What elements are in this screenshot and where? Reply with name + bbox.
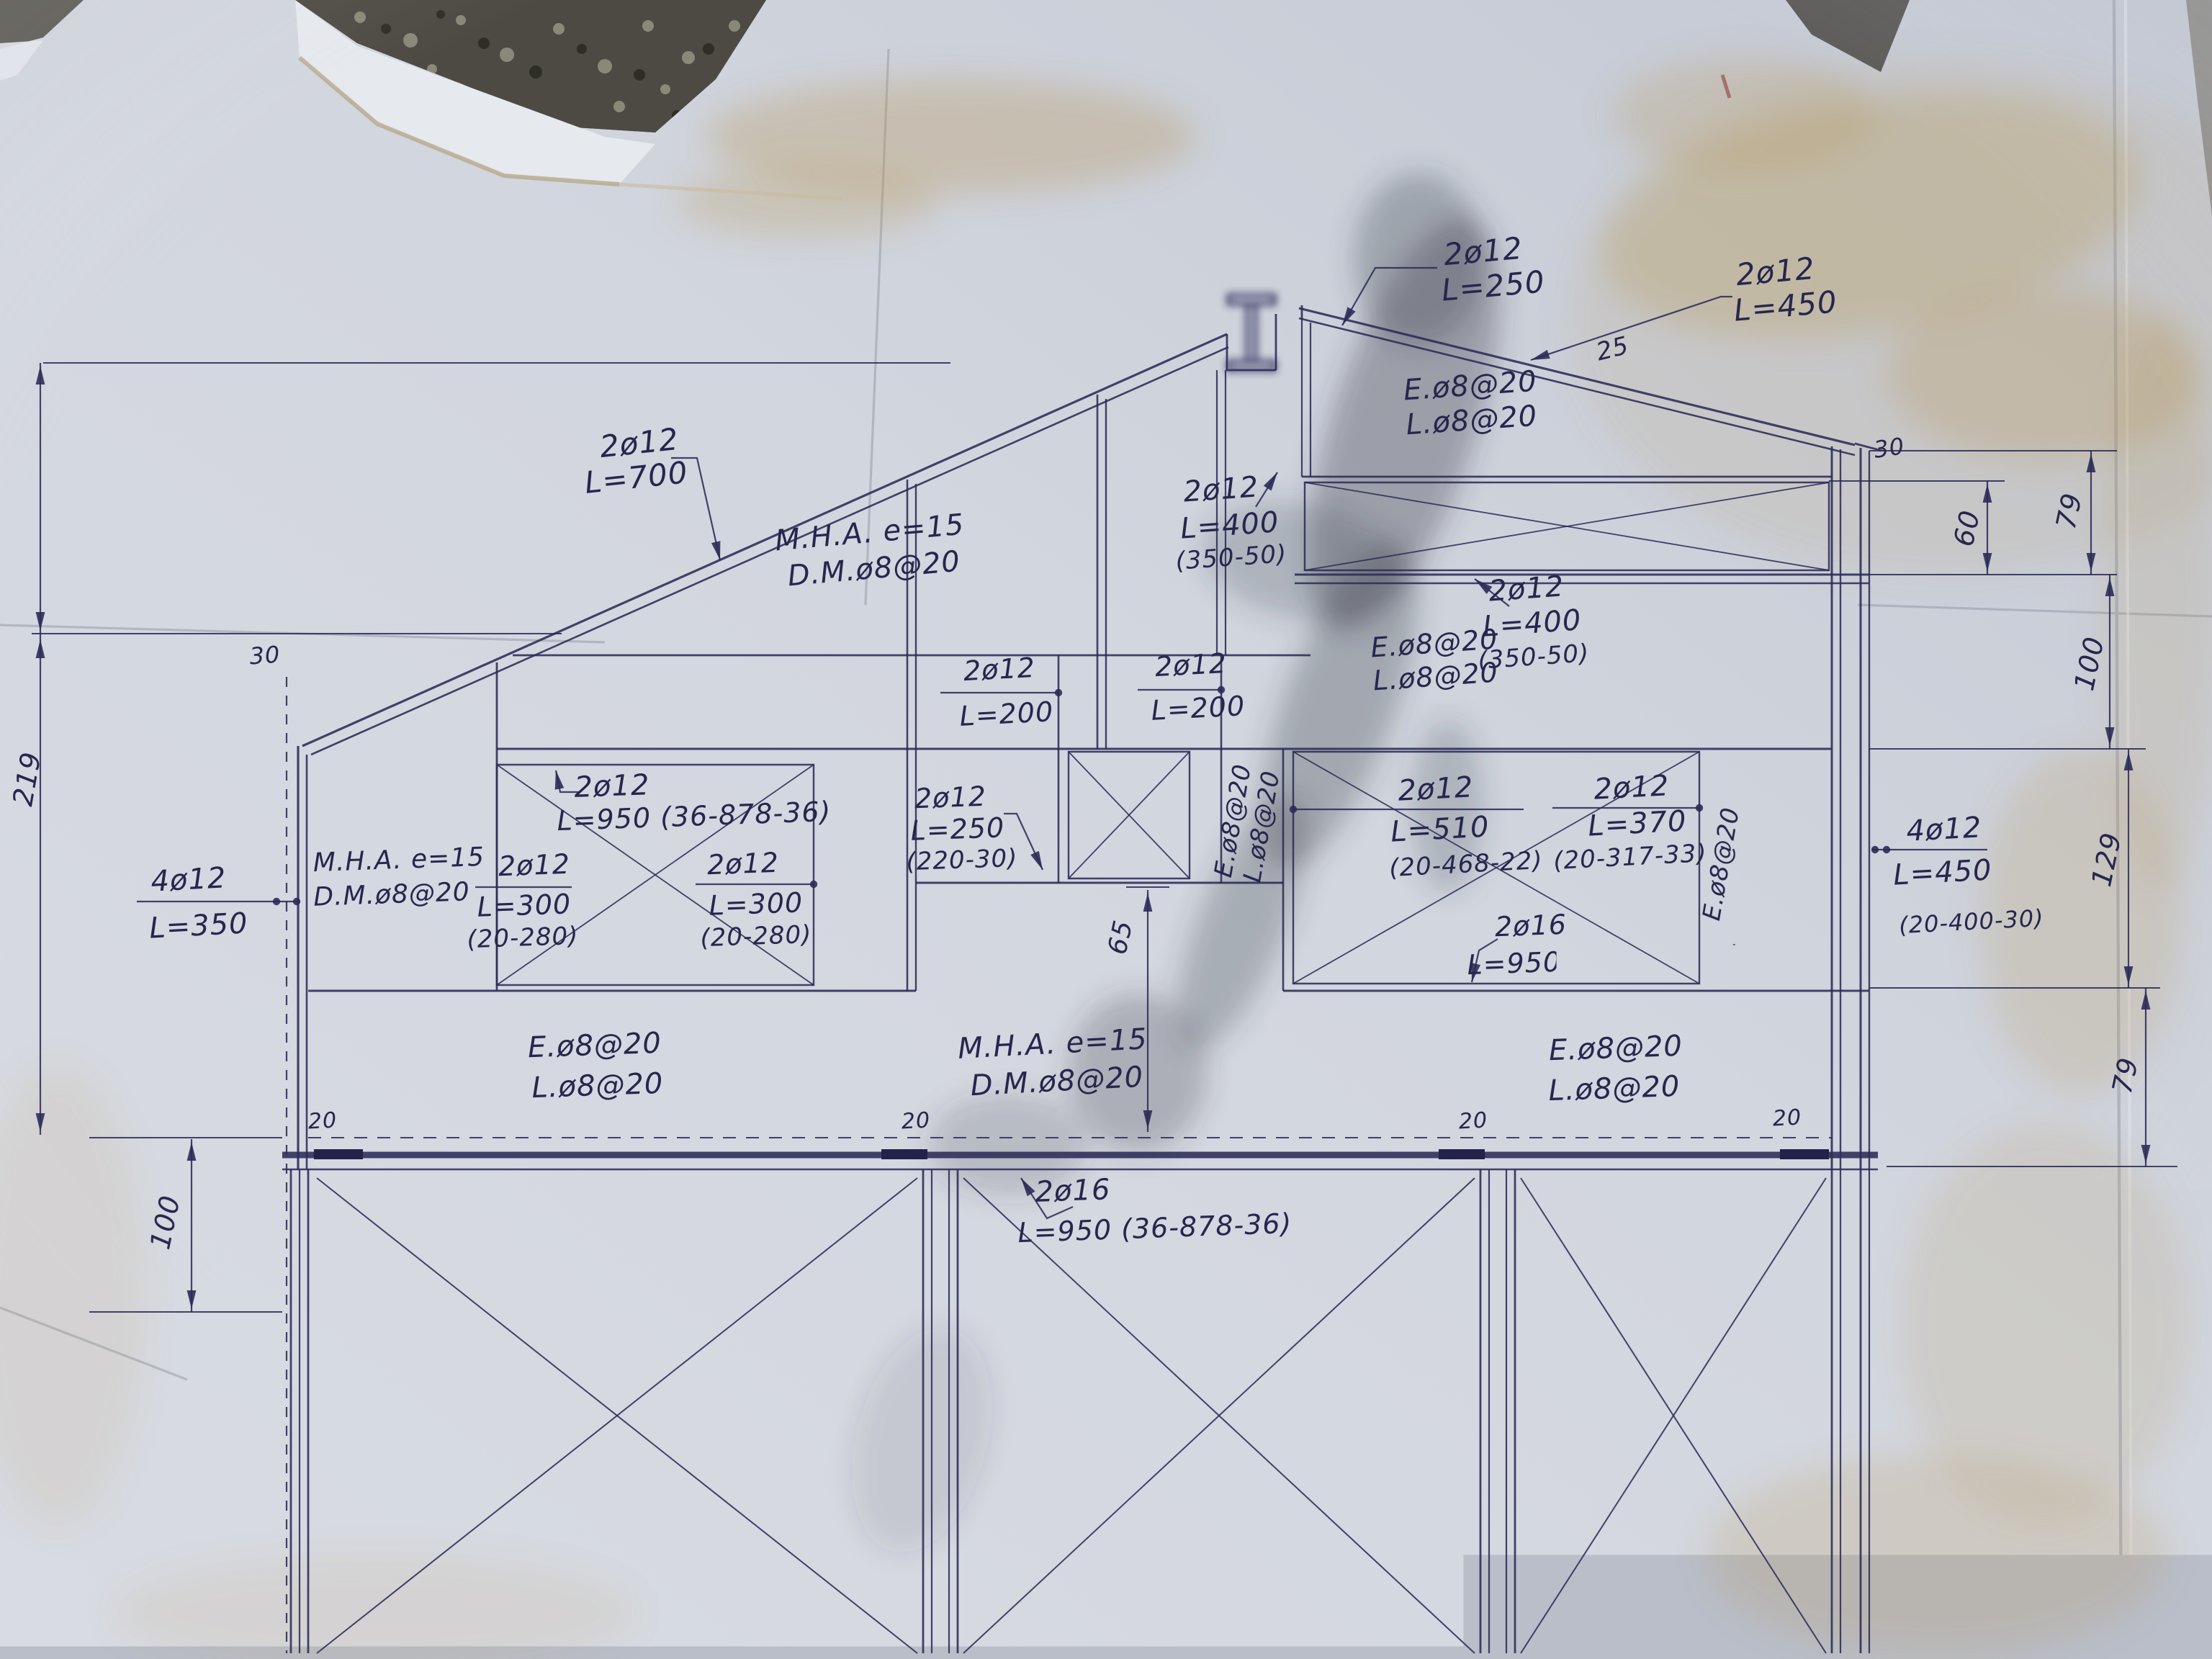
blueprint-cross-section: 2ø12L=2502ø12L=45025E.ø8@20L.ø8@202ø12L=… bbox=[0, 0, 2212, 1659]
photo-vignette bbox=[0, 0, 2212, 1659]
photo-of-structural-drawing: 2ø12L=2502ø12L=45025E.ø8@20L.ø8@202ø12L=… bbox=[0, 0, 2212, 1659]
